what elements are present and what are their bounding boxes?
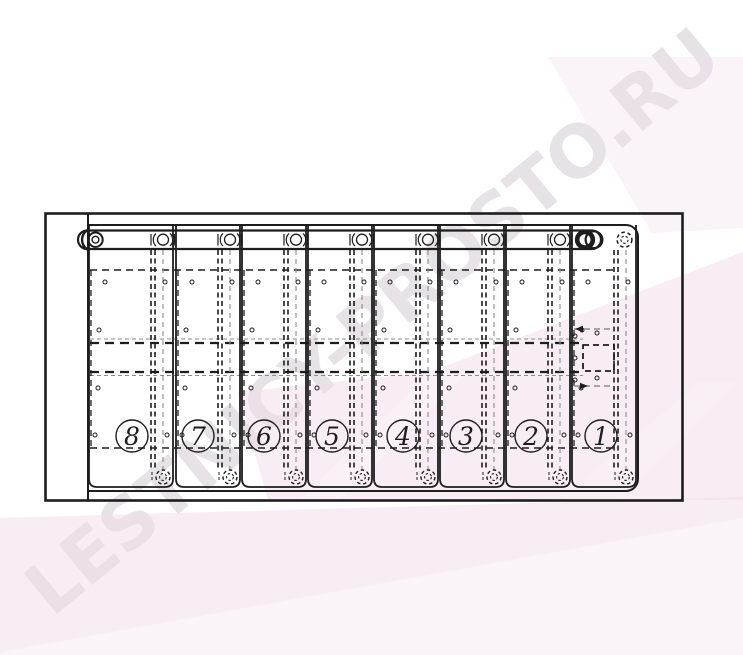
drawing-canvas: LESTNICY-PROSTO.RU [0,0,743,655]
rail-hinge-icon [151,234,175,247]
step-balloon-8: 8 [116,420,148,452]
step-number: 5 [324,422,340,451]
step-number: 8 [124,422,140,451]
step-number: 4 [394,422,411,451]
top-rail [78,229,632,251]
rail-hinge-icon [350,234,374,247]
rail-hinge-icon [218,234,242,247]
step-number: 6 [256,422,272,451]
step-number: 7 [190,422,206,451]
rail-hinge-icon [284,234,308,247]
rail-left-hinge-icon [88,233,102,247]
technical-drawing: LESTNICY-PROSTO.RU [0,0,743,655]
step-number: 1 [593,422,609,451]
rail-hinge-icon [548,234,572,247]
step-number: 3 [458,422,474,451]
hidden-hinge-icon [617,232,632,247]
step-number: 2 [522,422,539,451]
